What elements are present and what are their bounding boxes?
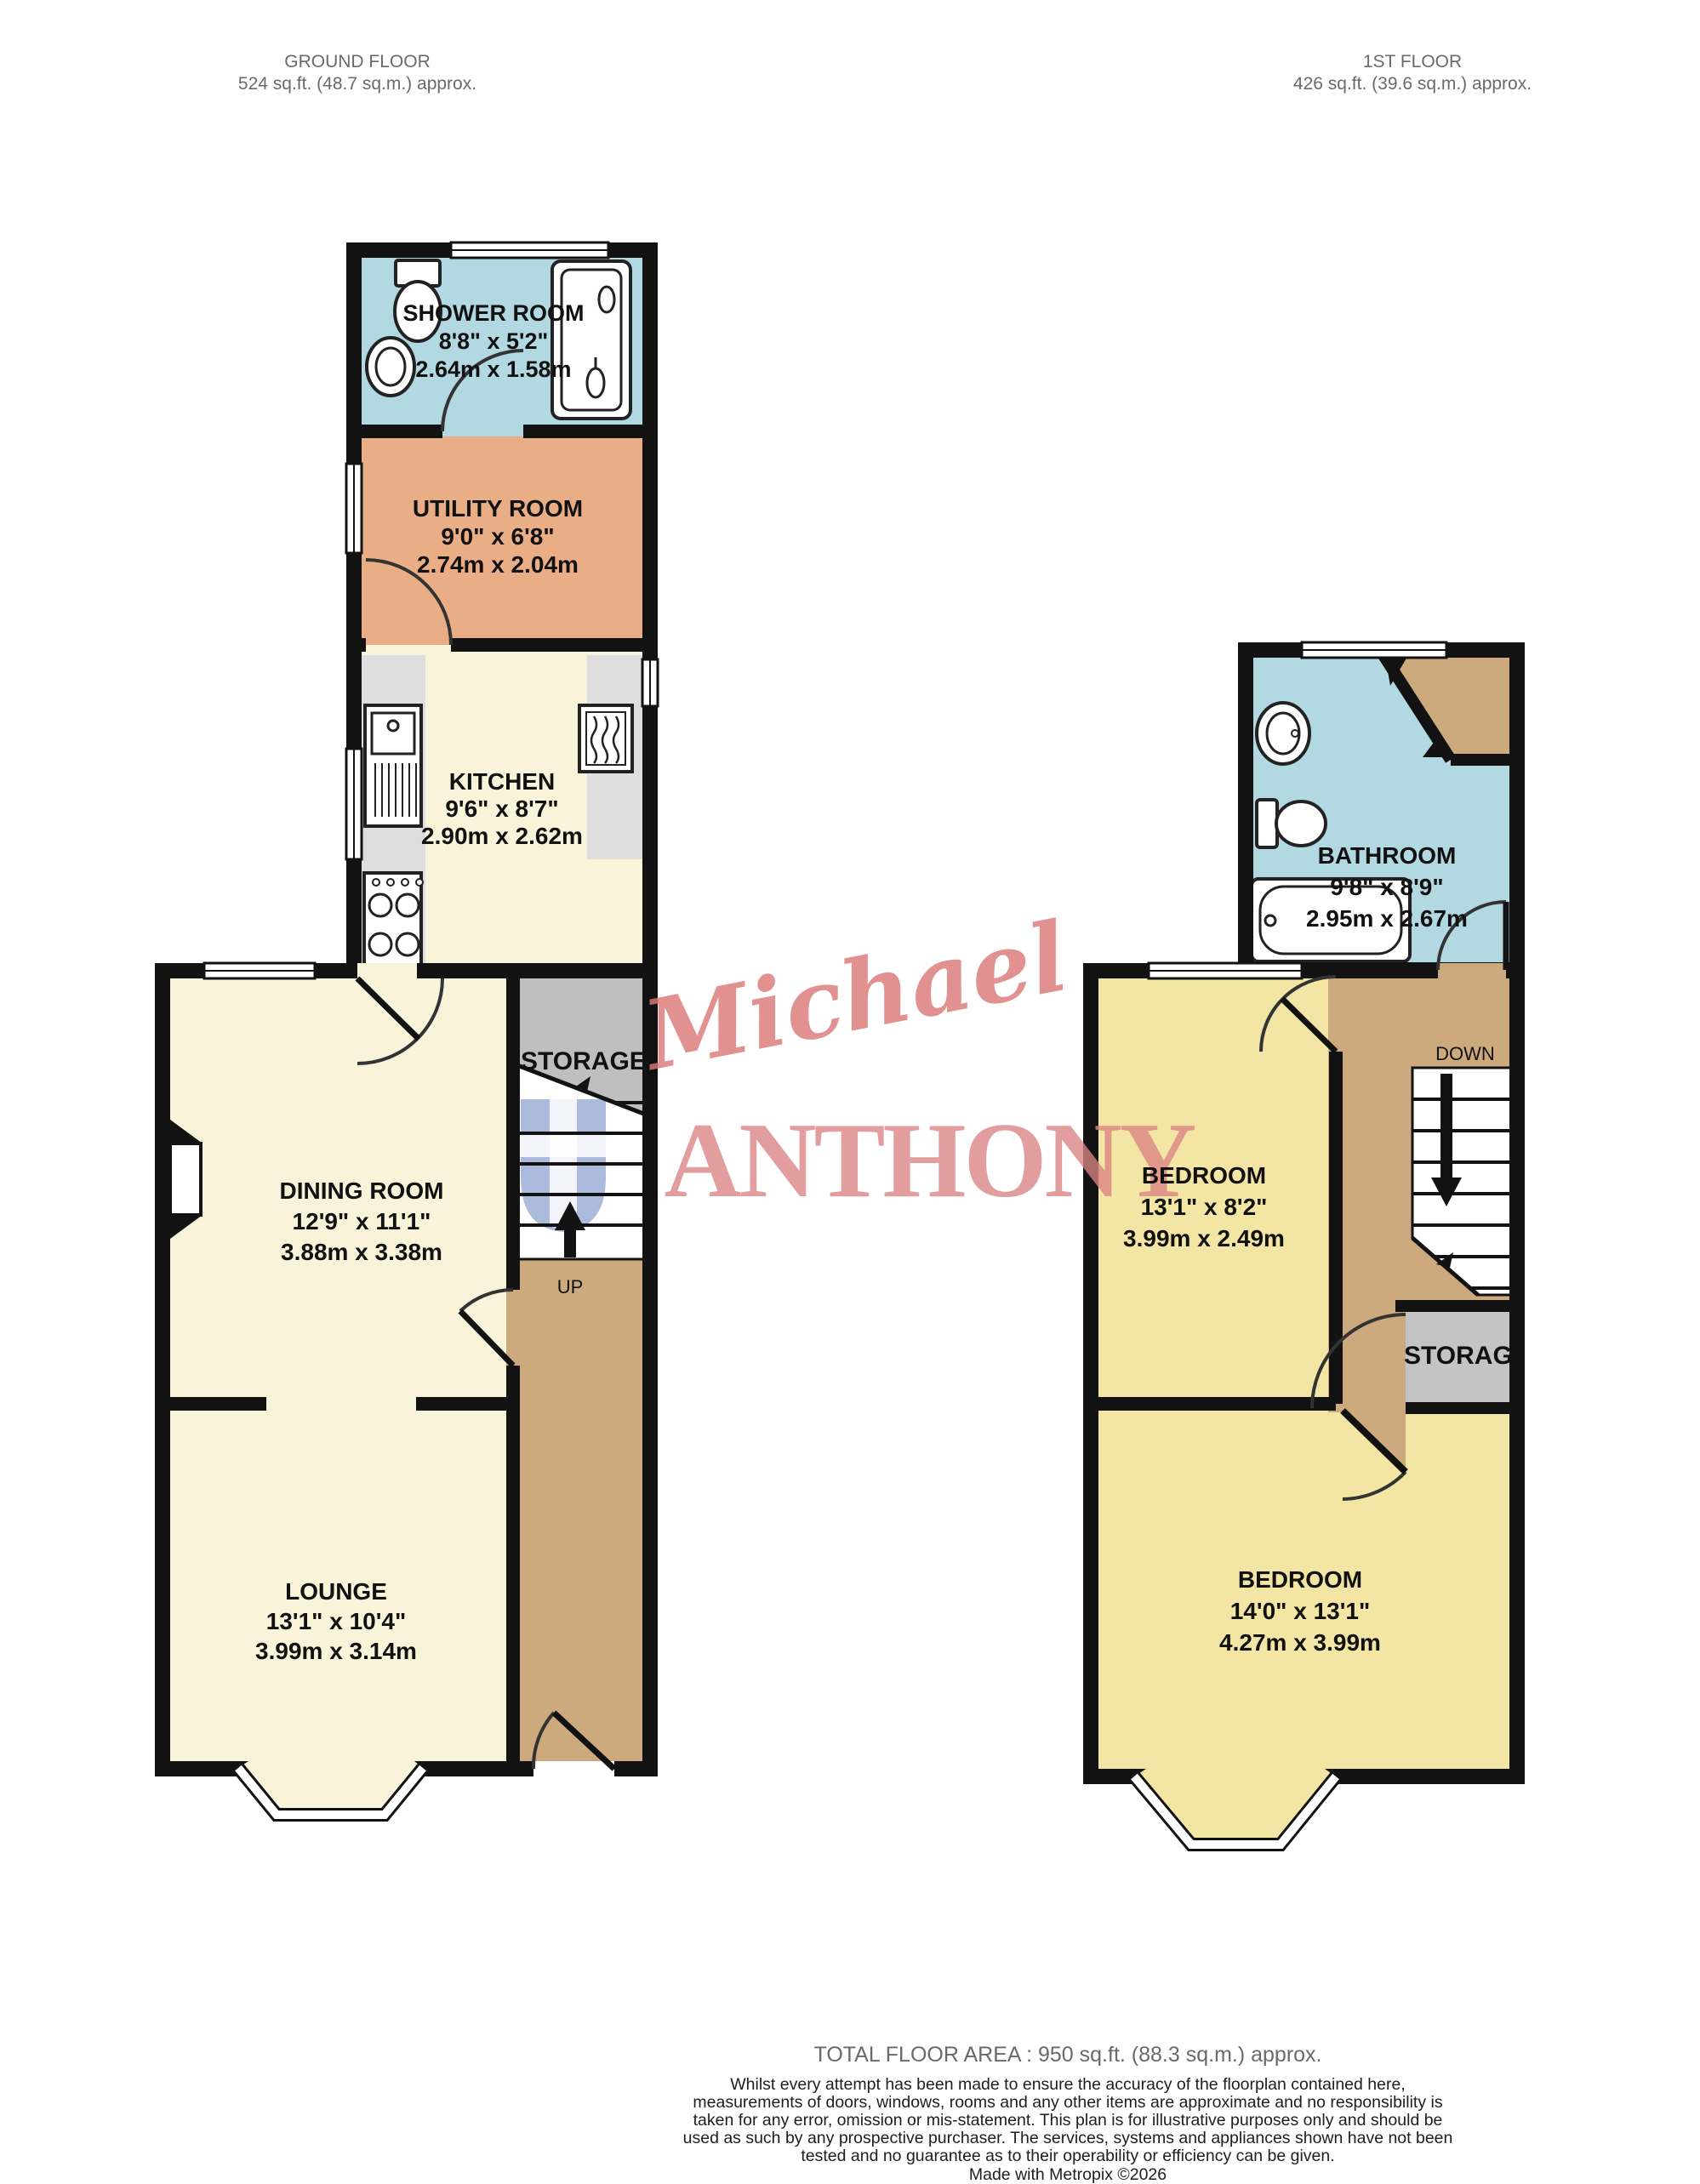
room-name: BEDROOM	[1076, 1160, 1332, 1191]
kitchen-label: KITCHEN 9'6" x 8'7" 2.90m x 2.62m	[366, 768, 638, 850]
room-imperial: 12'9" x 11'1"	[208, 1206, 515, 1237]
window-dining	[204, 963, 315, 978]
bedroom-one-label: BEDROOM 13'1" x 8'2" 3.99m x 2.49m	[1076, 1160, 1332, 1254]
room-imperial: 8'8" x 5'2"	[353, 328, 634, 356]
first-floor-header: 1ST FLOOR 426 sq.ft. (39.6 sq.m.) approx…	[1272, 51, 1553, 95]
bay-window-bedroom2	[1134, 1769, 1336, 1845]
ground-floor-plan	[155, 242, 658, 1776]
room-imperial: 13'1" x 8'2"	[1076, 1191, 1332, 1223]
room-name: BATHROOM	[1246, 840, 1527, 871]
shower-room-label: SHOWER ROOM 8'8" x 5'2" 2.64m x 1.58m	[353, 299, 634, 384]
bay-window-lounge	[238, 1761, 423, 1815]
room-name: KITCHEN	[366, 768, 638, 795]
room-metric: 2.64m x 1.58m	[353, 356, 634, 384]
room-name: UTILITY ROOM	[353, 494, 642, 522]
bathroom-basin-icon	[1257, 703, 1309, 764]
window-kitchen-right	[642, 659, 658, 706]
room-metric: 4.27m x 3.99m	[1172, 1627, 1428, 1658]
first-floor-area: 426 sq.ft. (39.6 sq.m.) approx.	[1272, 73, 1553, 95]
room-metric: 2.95m x 2.67m	[1246, 903, 1527, 934]
door-gap-kitchen-dining	[357, 963, 417, 978]
stairs-up-label: UP	[545, 1276, 596, 1298]
room-metric: 3.99m x 2.49m	[1076, 1223, 1332, 1254]
room-imperial: 13'1" x 10'4"	[200, 1606, 472, 1636]
metropix-credit: Made with Metropix ©2026	[681, 2166, 1455, 2184]
total-floor-area: TOTAL FLOOR AREA : 950 sq.ft. (88.3 sq.m…	[681, 2042, 1455, 2067]
utility-room-label: UTILITY ROOM 9'0" x 6'8" 2.74m x 2.04m	[353, 494, 642, 579]
dining-room-label: DINING ROOM 12'9" x 11'1" 3.88m x 3.38m	[208, 1176, 515, 1268]
stairs-down-label: DOWN	[1421, 1043, 1509, 1065]
room-imperial: 14'0" x 13'1"	[1172, 1595, 1428, 1627]
bathroom-label: BATHROOM 9'8" x 8'9" 2.95m x 2.67m	[1246, 840, 1527, 934]
radiator-icon	[579, 705, 632, 772]
storage-first-label: STORAGE	[1404, 1342, 1517, 1371]
room-imperial: 9'0" x 6'8"	[353, 522, 642, 550]
room-name: BEDROOM	[1172, 1564, 1428, 1595]
room-metric: 3.88m x 3.38m	[208, 1237, 515, 1268]
room-metric: 3.99m x 3.14m	[200, 1636, 472, 1666]
ground-floor-area: 524 sq.ft. (48.7 sq.m.) approx.	[217, 73, 498, 95]
room-name: DINING ROOM	[208, 1176, 515, 1206]
ground-floor-title: GROUND FLOOR	[217, 51, 498, 73]
window-bedroom1	[1149, 963, 1302, 978]
room-name: LOUNGE	[200, 1577, 472, 1606]
door-gap-bathroom	[1438, 963, 1506, 978]
bedroom-two-label: BEDROOM 14'0" x 13'1" 4.27m x 3.99m	[1172, 1564, 1428, 1658]
door-gap-front	[533, 1761, 614, 1776]
floorplan-drawing	[0, 0, 1700, 2178]
room-metric: 2.74m x 2.04m	[353, 550, 642, 579]
window-bathroom	[1302, 642, 1446, 658]
ground-floor-header: GROUND FLOOR 524 sq.ft. (48.7 sq.m.) app…	[217, 51, 498, 95]
room-imperial: 9'6" x 8'7"	[366, 795, 638, 823]
storage-ground-label: STORAGE	[521, 1047, 642, 1076]
room-name: SHOWER ROOM	[353, 299, 634, 328]
room-metric: 2.90m x 2.62m	[366, 823, 638, 850]
window-kitchen-left	[346, 749, 362, 859]
first-floor-title: 1ST FLOOR	[1272, 51, 1553, 73]
window-shower	[451, 242, 608, 258]
hob-icon	[364, 873, 423, 967]
footer: TOTAL FLOOR AREA : 950 sq.ft. (88.3 sq.m…	[681, 2042, 1455, 2184]
disclaimer-text: Whilst every attempt has been made to en…	[681, 2076, 1455, 2165]
room-imperial: 9'8" x 8'9"	[1246, 871, 1527, 903]
lounge-label: LOUNGE 13'1" x 10'4" 3.99m x 3.14m	[200, 1577, 472, 1666]
